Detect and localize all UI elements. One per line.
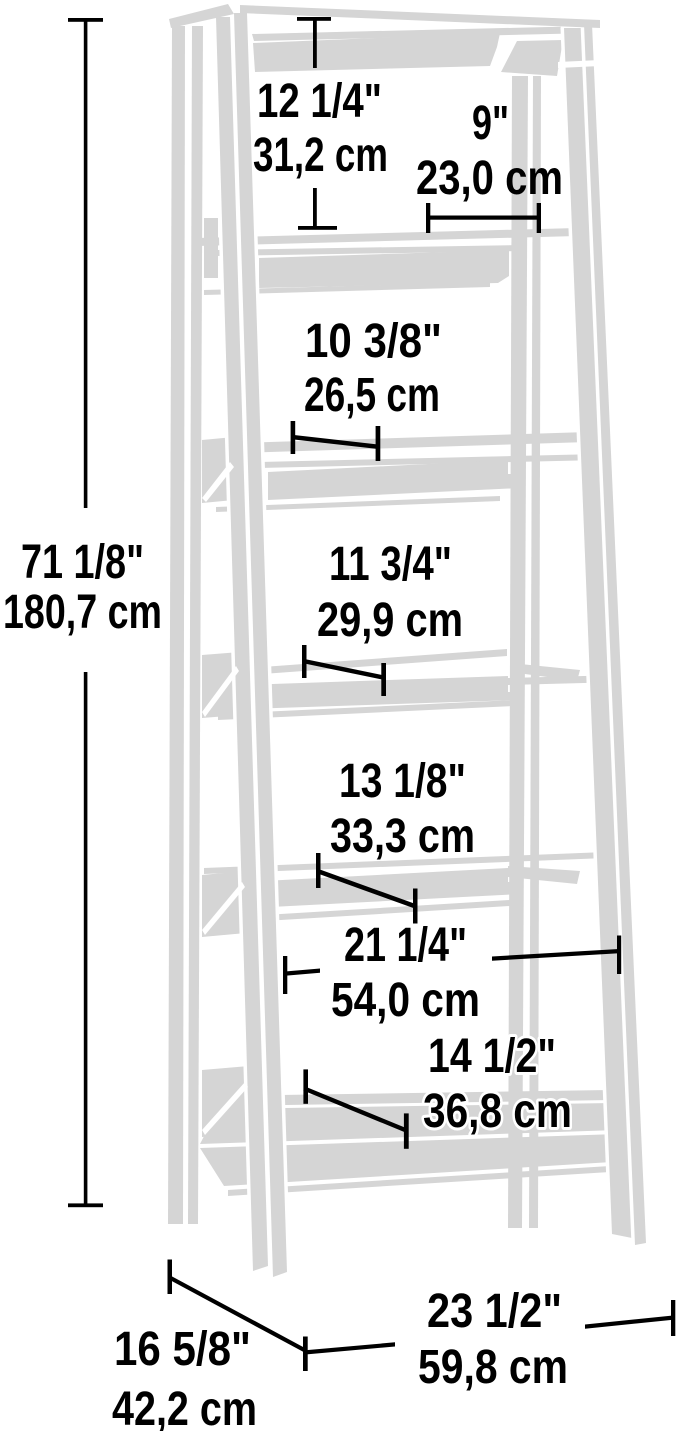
svg-text:59,8 cm: 59,8 cm xyxy=(418,1341,568,1394)
svg-text:9": 9" xyxy=(472,97,509,150)
svg-text:180,7 cm: 180,7 cm xyxy=(3,586,162,639)
svg-text:11 3/4": 11 3/4" xyxy=(329,538,452,591)
svg-text:26,5 cm: 26,5 cm xyxy=(304,369,440,422)
svg-text:23,0 cm: 23,0 cm xyxy=(416,152,563,205)
svg-text:23 1/2": 23 1/2" xyxy=(427,1285,562,1338)
svg-text:21 1/4": 21 1/4" xyxy=(344,919,467,972)
svg-text:33,3 cm: 33,3 cm xyxy=(330,810,475,863)
svg-text:12 1/4": 12 1/4" xyxy=(257,75,382,128)
svg-text:29,9 cm: 29,9 cm xyxy=(317,594,463,647)
svg-text:14 1/2": 14 1/2" xyxy=(428,1030,556,1083)
svg-text:10 3/8": 10 3/8" xyxy=(305,315,442,368)
svg-text:36,8 cm: 36,8 cm xyxy=(423,1085,572,1138)
svg-text:54,0 cm: 54,0 cm xyxy=(331,974,480,1027)
svg-text:31,2 cm: 31,2 cm xyxy=(253,129,388,182)
svg-text:42,2 cm: 42,2 cm xyxy=(112,1383,257,1431)
svg-text:13 1/8": 13 1/8" xyxy=(339,755,466,808)
svg-text:71 1/8": 71 1/8" xyxy=(21,536,144,589)
svg-text:16 5/8": 16 5/8" xyxy=(114,1323,251,1376)
